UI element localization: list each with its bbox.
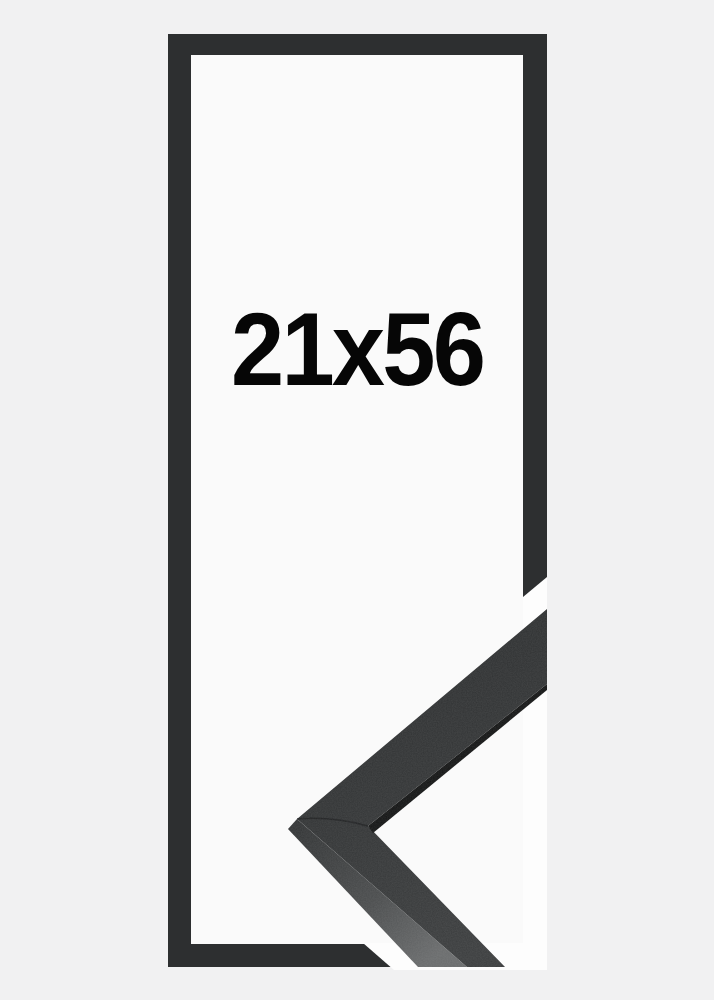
product-image: 21x56 bbox=[0, 0, 714, 1000]
